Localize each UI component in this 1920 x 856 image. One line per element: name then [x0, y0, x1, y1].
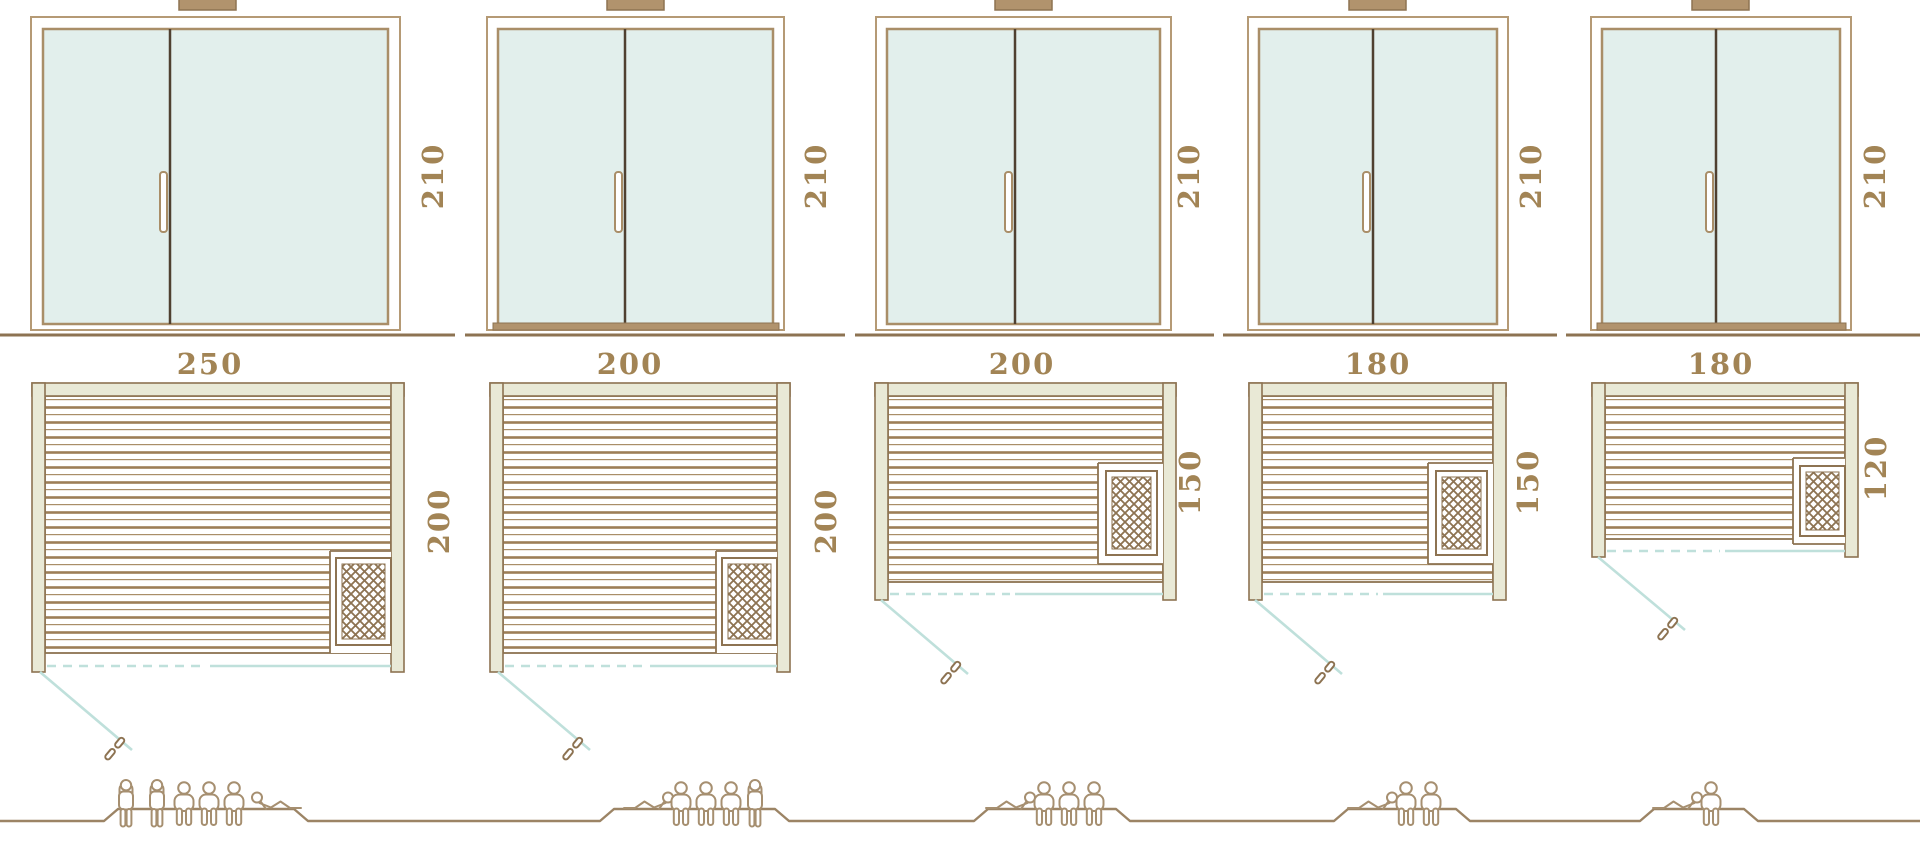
person-seated-icon [1702, 782, 1721, 825]
back-wall [875, 383, 1176, 396]
door-swing-line [498, 672, 590, 750]
person-seated-icon [175, 782, 194, 825]
vent-cap-icon [607, 0, 664, 10]
depth-label: 150 [1511, 449, 1545, 516]
sauna-size-diagram: 210 250 200 [0, 0, 1920, 856]
floor-plan-3 [875, 383, 1176, 685]
heater-icon [716, 551, 777, 653]
floor-plan-2 [490, 383, 790, 761]
vent-cap-icon [995, 0, 1052, 10]
depth-label: 150 [1173, 449, 1207, 516]
back-wall [1249, 383, 1506, 396]
heater-icon [330, 551, 391, 653]
person-lying-icon [986, 793, 1035, 810]
floor-plan-4 [1249, 383, 1506, 685]
back-wall [32, 383, 404, 396]
sauna-column-3: 210 200 150 [875, 0, 1207, 685]
heater-icon [1793, 458, 1845, 544]
door-elevation-2 [487, 0, 784, 330]
door-height-label: 210 [1172, 143, 1206, 210]
person-standing-icon [150, 780, 164, 827]
capacity-group-5 [1653, 782, 1721, 825]
glass-panels [887, 29, 1160, 324]
person-seated-icon [722, 782, 741, 825]
person-seated-icon [225, 782, 244, 825]
door-elevation-4 [1248, 0, 1508, 330]
back-wall [1592, 383, 1858, 396]
person-seated-icon [697, 782, 716, 825]
door-handle-icon [1005, 172, 1012, 232]
capacity-group-1 [119, 780, 301, 827]
person-seated-icon [1035, 782, 1054, 825]
left-wall [875, 383, 888, 600]
left-wall [1592, 383, 1605, 557]
glass-panels [1259, 29, 1497, 324]
right-wall [1493, 383, 1506, 600]
vent-cap-icon [1349, 0, 1406, 10]
floor-plan-5 [1592, 383, 1858, 641]
door-handle-icon [1363, 172, 1370, 232]
width-label: 200 [597, 347, 664, 381]
sauna-column-1: 210 250 200 [31, 0, 456, 761]
depth-label: 200 [422, 488, 456, 555]
capacity-group-2 [624, 780, 762, 827]
diagram-svg: 210 250 200 [0, 0, 1920, 856]
person-lying-icon [624, 793, 673, 810]
door-elevation-1 [31, 0, 400, 330]
person-seated-icon [1422, 782, 1441, 825]
floor-plan-1 [32, 383, 404, 761]
left-wall [1249, 383, 1262, 600]
door-height-label: 210 [1514, 143, 1548, 210]
person-standing-icon [748, 780, 762, 827]
person-standing-icon [119, 780, 133, 827]
depth-label: 200 [809, 488, 843, 555]
glass-panels [1602, 29, 1840, 324]
person-lying-icon [1653, 793, 1702, 810]
back-wall [490, 383, 790, 396]
right-wall [391, 383, 404, 672]
heater-icon [1428, 463, 1493, 564]
door-handle-icon [160, 172, 167, 232]
capacity-group-3 [986, 782, 1104, 825]
door-key-icon [1314, 661, 1335, 685]
door-handle-icon [615, 172, 622, 232]
glass-panels [43, 29, 388, 324]
person-lying-icon [252, 793, 301, 810]
heater-icon [1098, 463, 1163, 564]
person-seated-icon [200, 782, 219, 825]
depth-label: 120 [1859, 435, 1893, 502]
door-key-icon [562, 737, 583, 761]
width-label: 200 [989, 347, 1056, 381]
door-height-label: 210 [416, 143, 450, 210]
left-wall [32, 383, 45, 672]
person-seated-icon [1060, 782, 1079, 825]
person-seated-icon [1397, 782, 1416, 825]
person-seated-icon [1085, 782, 1104, 825]
right-wall [1845, 383, 1858, 557]
glass-panels [498, 29, 773, 324]
door-key-icon [104, 737, 125, 761]
sauna-column-2: 210 200 200 [487, 0, 843, 761]
door-swing-line [40, 672, 132, 750]
door-elevation-5 [1591, 0, 1851, 330]
width-label: 250 [177, 347, 244, 381]
door-key-icon [940, 661, 961, 685]
sauna-column-5: 210 180 120 [1591, 0, 1893, 641]
door-key-icon [1657, 617, 1678, 641]
capacity-group-4 [1348, 782, 1441, 825]
door-handle-icon [1706, 172, 1713, 232]
capacity-baseline [0, 809, 1920, 821]
left-wall [490, 383, 503, 672]
right-wall [777, 383, 790, 672]
width-label: 180 [1688, 347, 1755, 381]
vent-cap-icon [1692, 0, 1749, 10]
person-lying-icon [1348, 793, 1397, 810]
door-elevation-3 [876, 0, 1171, 330]
door-height-label: 210 [799, 143, 833, 210]
person-seated-icon [672, 782, 691, 825]
vent-cap-icon [179, 0, 236, 10]
door-sill [1597, 323, 1846, 330]
width-label: 180 [1345, 347, 1412, 381]
door-sill [493, 323, 779, 330]
door-height-label: 210 [1858, 143, 1892, 210]
sauna-column-4: 210 180 150 [1248, 0, 1548, 685]
